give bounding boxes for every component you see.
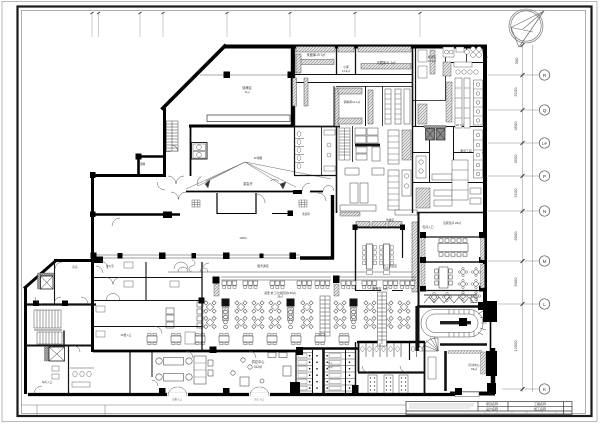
svg-text:5100: 5100 [513,188,518,198]
svg-text:L: L [543,302,546,307]
svg-text:4500: 4500 [513,154,518,164]
svg-text:宴会厅: 宴会厅 [243,181,253,186]
svg-text:Q: Q [543,108,547,113]
svg-text:供应中心: 供应中心 [252,359,266,364]
svg-text:备餐间: 备餐间 [386,218,394,222]
svg-text:包间入口: 包间入口 [422,225,433,229]
svg-text:调料库12.1㎡: 调料库12.1㎡ [344,100,361,104]
svg-text:库房: 库房 [72,265,78,269]
svg-text:312㎡: 312㎡ [254,364,263,369]
svg-text:车库入口: 车库入口 [42,380,53,384]
svg-text:洗消间: 洗消间 [302,212,310,216]
svg-text:12000: 12000 [513,340,518,352]
svg-text:冷藏库31.2㎡: 冷藏库31.2㎡ [377,60,397,65]
svg-text:办公室: 办公室 [106,264,114,268]
svg-text:10604: 10604 [239,236,247,240]
svg-text:员工通道区: 员工通道区 [383,264,397,268]
svg-text:2F雨棚: 2F雨棚 [254,156,263,160]
svg-text:4500: 4500 [513,121,518,131]
svg-text:93㎡: 93㎡ [471,367,477,371]
svg-text:工程名称: 工程名称 [534,401,546,406]
svg-text:(需要 依 工/法规范围3.68㎡): (需要 依 工/法规范围3.68㎡) [264,291,296,295]
svg-text:2F雨棚: 2F雨棚 [137,162,146,166]
svg-text:米面库19.7㎡: 米面库19.7㎡ [307,52,327,57]
svg-text:烧烤区: 烧烤区 [242,85,252,90]
svg-text:23㎡: 23㎡ [327,365,333,369]
svg-text:300: 300 [514,57,519,64]
svg-text:6000: 6000 [513,231,518,241]
svg-text:后勤入口: 后勤入口 [172,397,182,401]
svg-text:粗加工间: 粗加工间 [460,149,471,153]
svg-text:15.0㎡: 15.0㎡ [428,59,436,63]
svg-text:5100: 5100 [513,87,518,97]
svg-text:1/P: 1/P [542,142,548,146]
svg-text:M: M [543,259,547,264]
svg-text:设计名称: 设计名称 [486,406,498,411]
svg-text:4F楼入口: 4F楼入口 [121,333,132,337]
svg-text:施工名称: 施工名称 [534,406,546,411]
svg-text:N: N [543,209,546,214]
svg-text:项目名称: 项目名称 [486,401,498,406]
svg-text:11.3㎡: 11.3㎡ [342,69,350,73]
svg-text:47㎡: 47㎡ [244,90,250,94]
svg-text:贵宾包间 28㎡: 贵宾包间 28㎡ [443,221,461,225]
svg-text:P: P [543,174,546,179]
svg-text:服务通道: 服务通道 [257,264,268,268]
svg-text:员工入口: 员工入口 [254,397,264,401]
svg-text:18.7㎡: 18.7㎡ [456,123,464,127]
svg-text:取餐区 9㎡: 取餐区 9㎡ [372,286,388,291]
svg-text:6000: 6000 [513,277,518,287]
svg-text:28㎡: 28㎡ [277,295,283,299]
